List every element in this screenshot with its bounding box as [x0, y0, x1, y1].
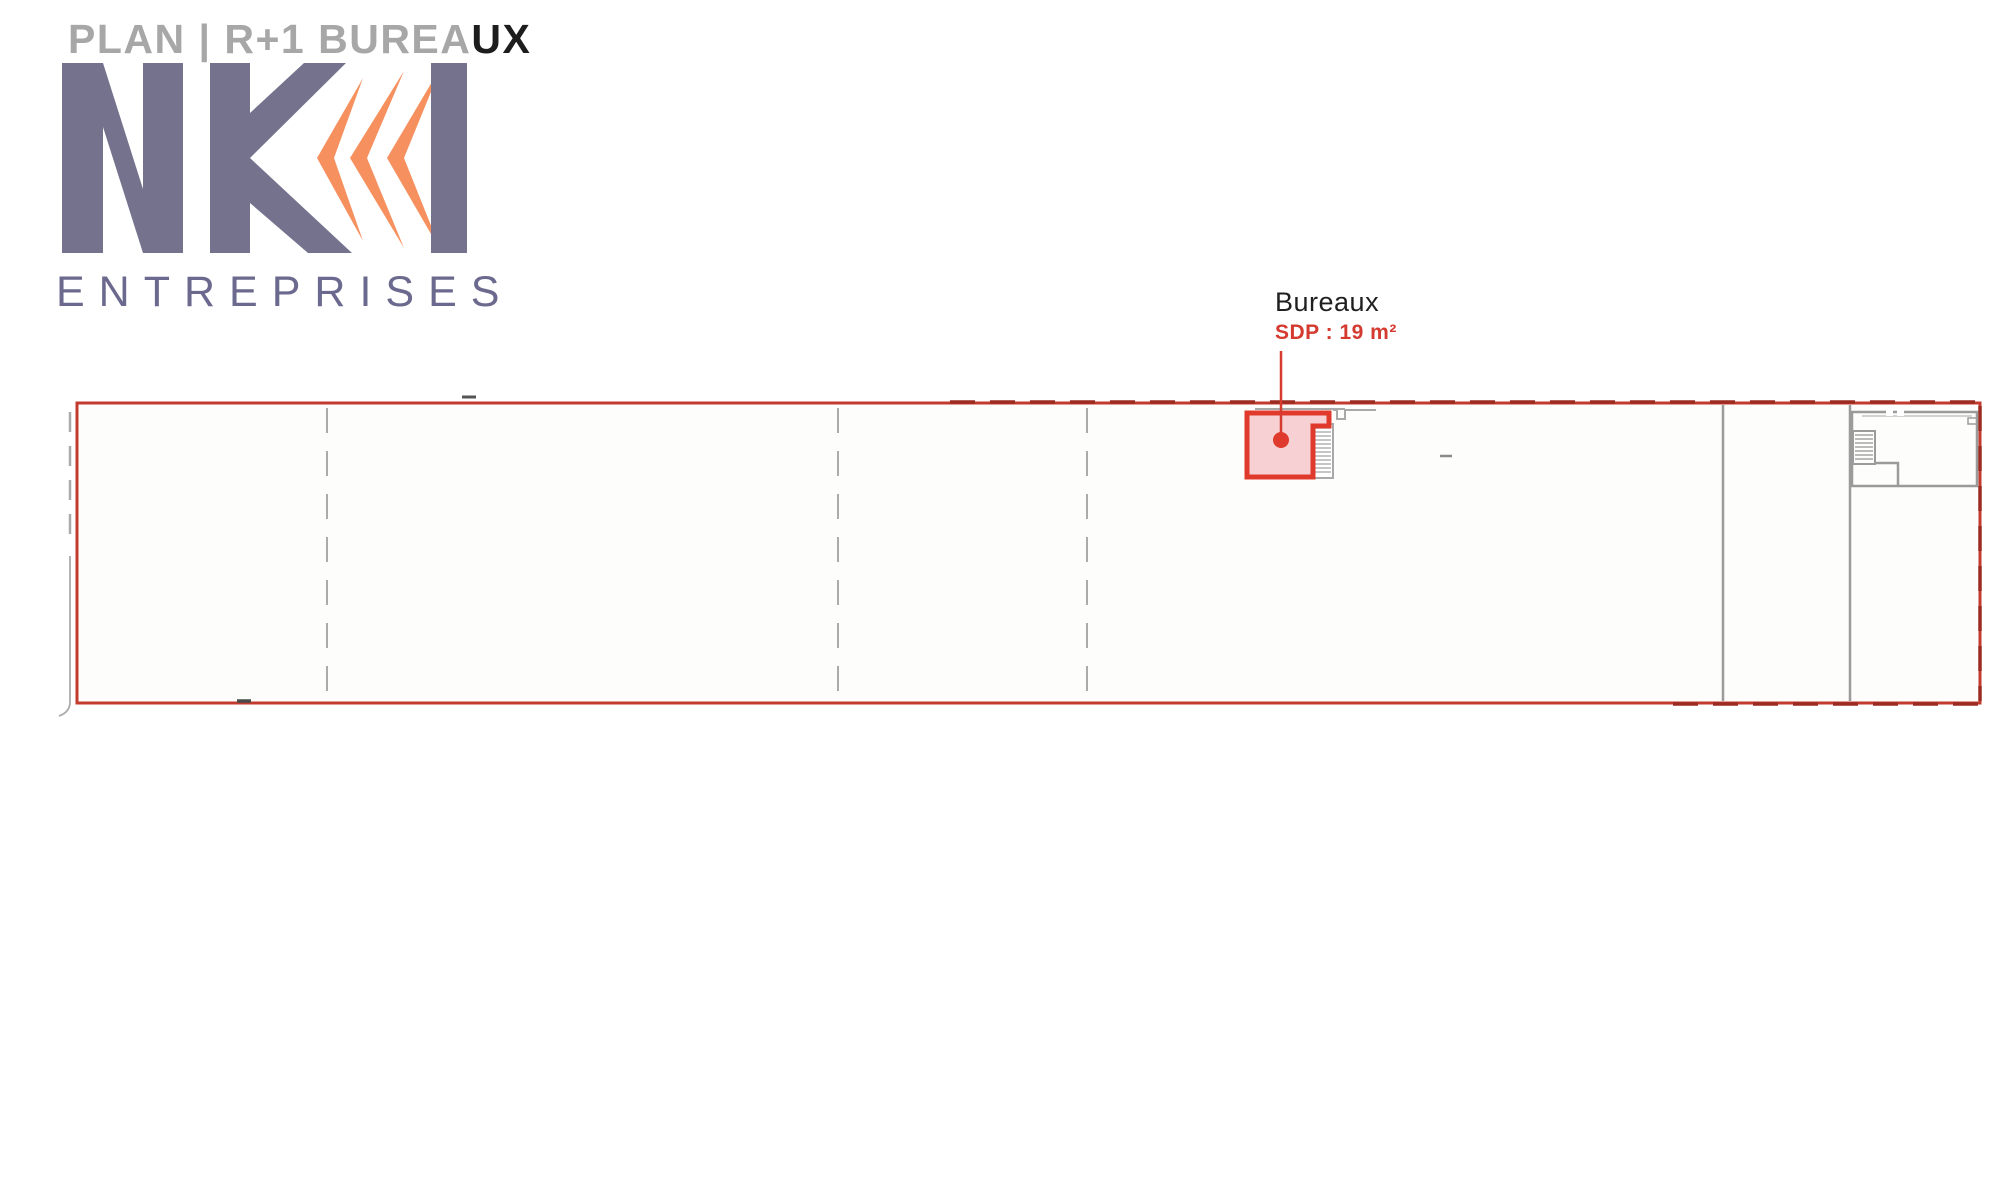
room-label: Bureaux SDP : 19 m²: [1275, 288, 1397, 344]
room-label-name: Bureaux: [1275, 288, 1397, 318]
page: PLAN | R+1 BUREAUX ENTREPRISES: [0, 0, 2000, 1178]
right-staircase-icon: [1853, 431, 1875, 464]
left-exterior-lines: [59, 412, 70, 716]
top-right-room: [1852, 409, 1977, 486]
room-label-area: SDP : 19 m²: [1275, 321, 1397, 344]
floor-plan-drawing: [0, 0, 2000, 1178]
plan-floor-area: [77, 403, 1980, 703]
